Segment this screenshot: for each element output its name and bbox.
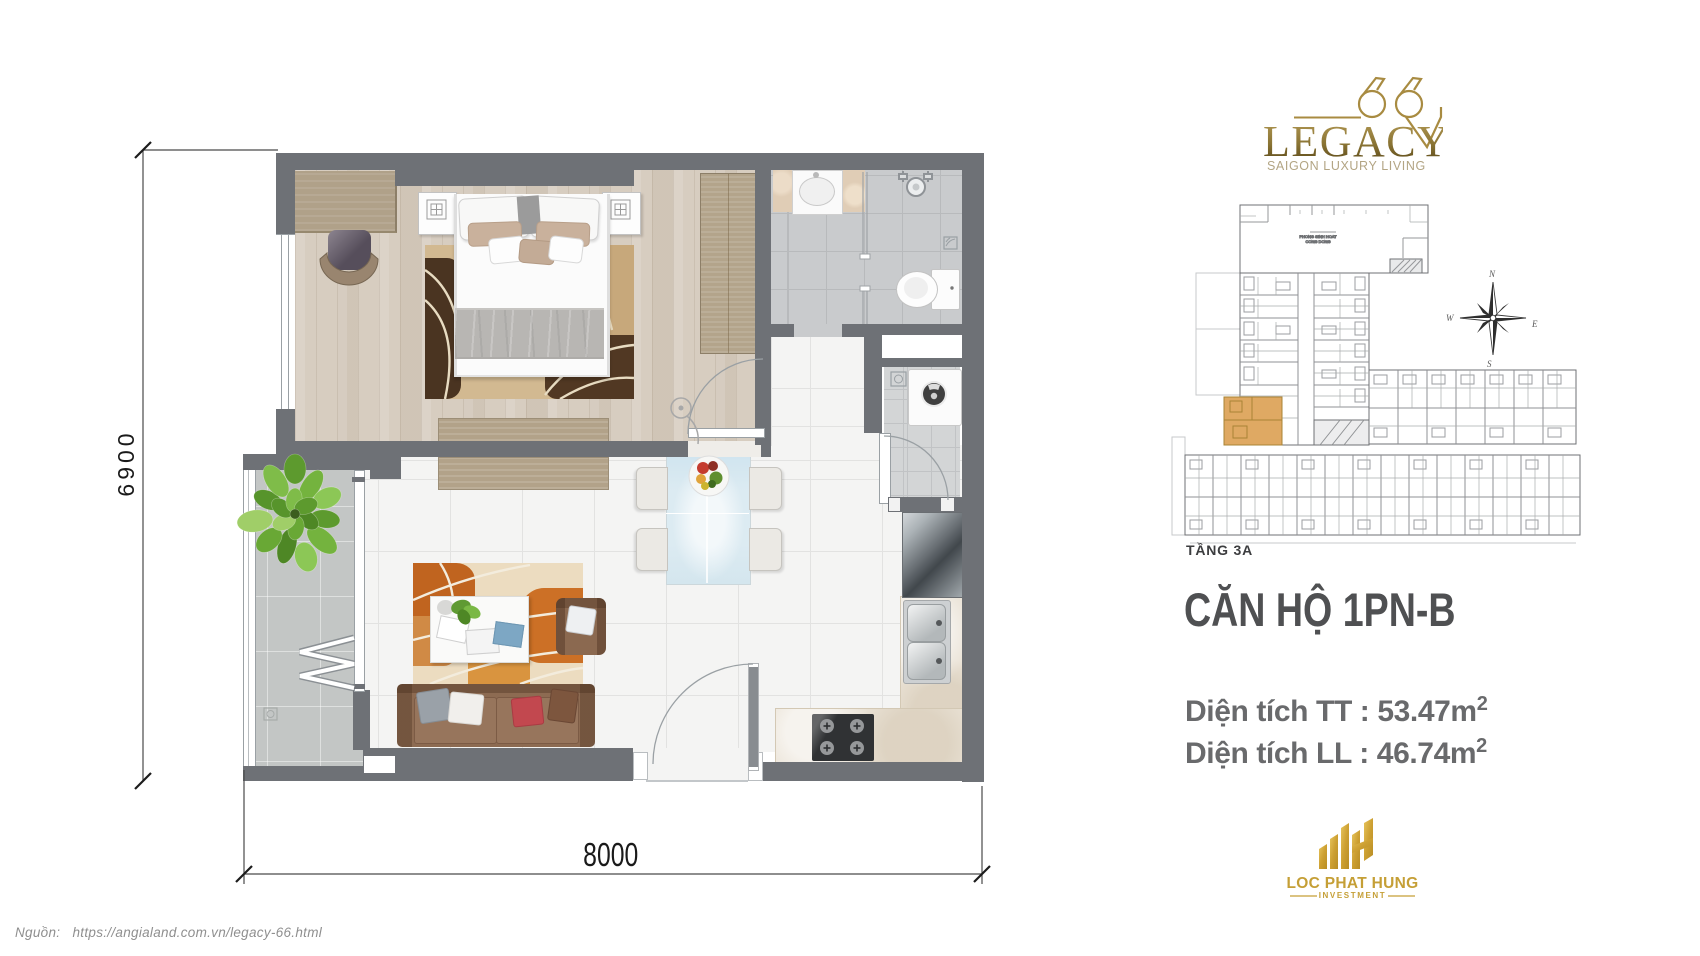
svg-text:N: N (1488, 269, 1496, 279)
svg-text:W: W (1446, 313, 1455, 323)
svg-text:S: S (1487, 359, 1492, 369)
svg-text:E: E (1531, 319, 1538, 329)
svg-text:CONG DONG: CONG DONG (1305, 239, 1330, 244)
